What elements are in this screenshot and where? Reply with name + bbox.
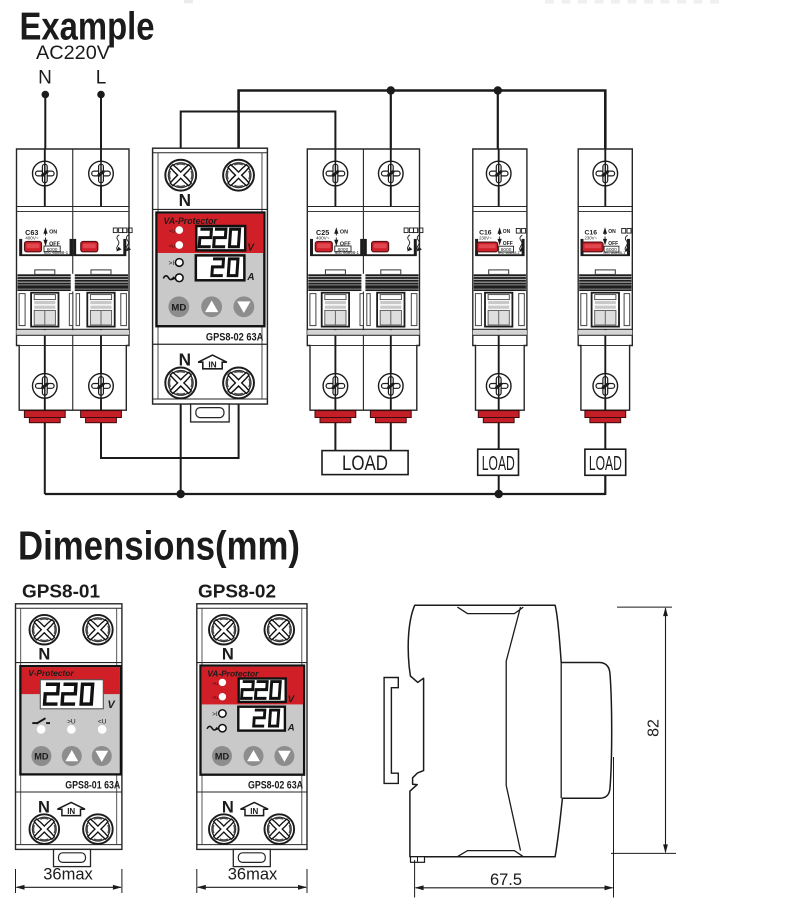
svg-text:V: V [108,699,116,711]
svg-text:N: N [38,68,52,89]
svg-text:IEC 60898-1: IEC 60898-1 [44,250,69,255]
svg-text:400V~: 400V~ [25,235,39,240]
svg-text:82: 82 [646,719,663,737]
svg-text:N: N [179,349,191,369]
svg-text:230V~: 230V~ [479,236,492,241]
svg-text:>U: >U [169,229,176,235]
svg-text:IEC 60898-1: IEC 60898-1 [335,250,360,255]
svg-text:LOAD: LOAD [342,452,388,475]
svg-text:>U: >U [212,681,218,686]
svg-text:MD: MD [215,751,230,761]
svg-text:L: L [96,68,107,89]
svg-text:GPS8-01: GPS8-01 [22,582,100,602]
svg-text:IEC 60898-1: IEC 60898-1 [603,250,625,255]
svg-text:LOAD: LOAD [589,453,622,475]
svg-text:A: A [287,722,295,733]
svg-text:IN: IN [67,807,75,816]
svg-text:<U: <U [98,719,107,726]
svg-text:>I: >I [169,260,175,267]
svg-text:GPS8-02 63A: GPS8-02 63A [248,779,303,791]
svg-text:ON: ON [503,229,511,235]
svg-text:V: V [288,694,295,705]
svg-text:ON: ON [340,230,348,236]
svg-text:MD: MD [171,302,186,313]
svg-text:230V~: 230V~ [585,236,598,241]
svg-text:67.5: 67.5 [490,871,522,889]
svg-text:<U: <U [169,243,176,249]
svg-text:GPS8-01 63A: GPS8-01 63A [65,779,120,791]
svg-text:36max: 36max [43,866,93,884]
svg-text:VA-Protector: VA-Protector [164,216,218,226]
svg-text:GPS8-02: GPS8-02 [198,582,276,602]
svg-text:N: N [38,645,50,663]
svg-text:ON: ON [608,229,616,235]
svg-text:N: N [179,190,191,210]
svg-text:36max: 36max [228,866,278,884]
svg-text:>I: >I [212,711,218,718]
svg-text:>U: >U [67,719,76,726]
svg-text:IN: IN [208,359,216,369]
svg-text:GPS8-02 63A: GPS8-02 63A [206,331,263,343]
svg-text:LOAD: LOAD [482,453,515,475]
svg-text:VA-Protector: VA-Protector [207,668,259,678]
svg-text:IN: IN [250,807,258,816]
svg-text:Dimensions(mm): Dimensions(mm) [18,523,300,569]
svg-text:AC220V: AC220V [36,43,110,64]
svg-text:ON: ON [49,230,57,236]
svg-text:IEC 60898-1: IEC 60898-1 [498,250,520,255]
svg-text:400V~: 400V~ [316,235,330,240]
svg-text:MD: MD [34,751,49,761]
svg-text:A: A [246,272,254,283]
svg-text:<U: <U [212,695,218,700]
svg-text:N: N [222,645,234,663]
svg-text:V-Protector: V-Protector [28,668,74,678]
